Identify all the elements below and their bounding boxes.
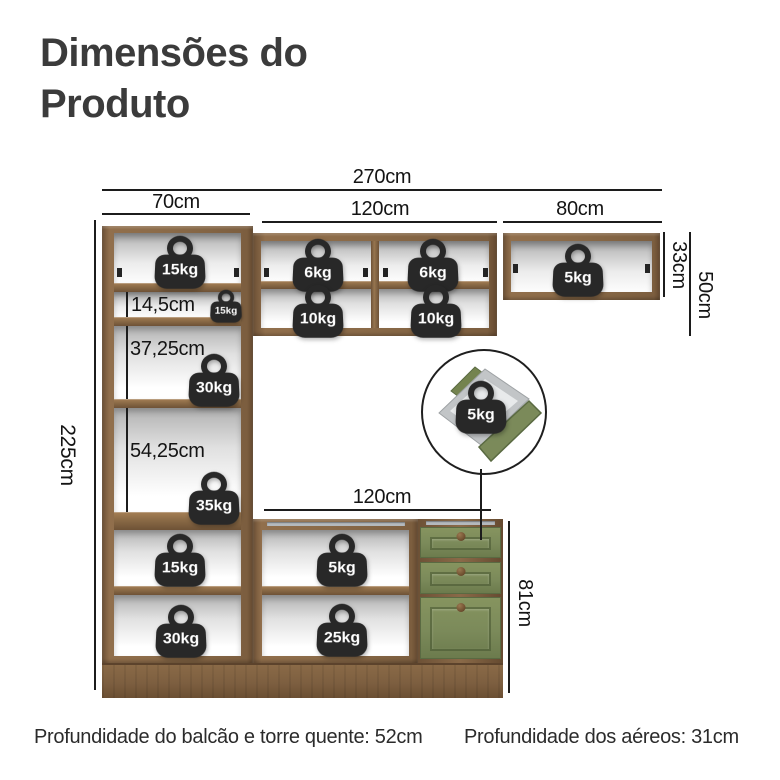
dim-line-upper-mid-width — [262, 221, 497, 223]
hinge-mark-icon — [117, 268, 122, 277]
weight-badge-upper-mid-top-right: 6kg — [407, 239, 459, 292]
dim-line-counter-height — [508, 521, 510, 693]
dim-line-upper-right-width — [503, 221, 662, 223]
weight-label: 5kg — [316, 553, 368, 587]
page-title: Dimensões do Produto — [40, 28, 390, 130]
dim-line-shelf-mid — [126, 326, 128, 399]
hinge-mark-icon — [363, 268, 368, 277]
weight-label: 10kg — [410, 304, 462, 338]
dim-line-upper-right-height — [663, 232, 665, 297]
hinge-mark-icon — [383, 268, 388, 277]
weight-badge-tower-shelf-large: 35kg — [188, 472, 240, 525]
weight-badge-upper-right: 5kg — [552, 244, 604, 297]
dim-label-upper-mid-width: 120cm — [351, 198, 410, 221]
weight-badge-tower-bottom: 30kg — [155, 605, 207, 658]
weight-label: 30kg — [188, 373, 240, 407]
weight-label: 5kg — [552, 263, 604, 297]
dim-label-counter-width: 120cm — [353, 486, 412, 509]
dim-line-tower-width — [102, 213, 250, 215]
dim-label-tower-height: 225cm — [55, 424, 79, 486]
hinge-mark-icon — [234, 268, 239, 277]
weight-label: 5kg — [455, 400, 507, 434]
weight-label: 15kg — [154, 553, 206, 587]
dim-label-shelf-large: 54,25cm — [130, 440, 205, 463]
drawer-unit-open-top — [426, 521, 495, 525]
weight-badge-upper-mid-top-left: 6kg — [292, 239, 344, 292]
dim-line-total-width — [102, 189, 662, 191]
hinge-mark-icon — [645, 264, 650, 273]
weight-badge-drawer: 5kg — [455, 381, 507, 434]
dim-label-upper-mid-height: 50cm — [693, 271, 716, 319]
weight-badge-tower-top: 15kg — [154, 236, 206, 289]
dim-label-shelf-small: 14,5cm — [131, 294, 195, 317]
tower-shelf — [114, 586, 241, 595]
dim-label-upper-right-width: 80cm — [556, 198, 604, 221]
hinge-mark-icon — [264, 268, 269, 277]
dim-label-total-width: 270cm — [353, 166, 412, 189]
footer-depth-upper: Profundidade dos aéreos: 31cm — [464, 726, 739, 749]
dim-label-counter-height: 81cm — [513, 579, 536, 627]
weight-badge-tower-lower: 15kg — [154, 534, 206, 587]
dim-line-tower-height — [94, 220, 96, 690]
dim-line-counter-width — [264, 509, 491, 511]
hinge-mark-icon — [513, 264, 518, 273]
green-drawer-unit — [418, 519, 503, 663]
drawer-knob-icon — [456, 532, 465, 541]
counter-shelf — [262, 586, 409, 595]
drawer-1 — [420, 527, 501, 558]
drawer-3 — [420, 597, 501, 659]
weight-label: 30kg — [155, 624, 207, 658]
dim-line-shelf-large — [126, 408, 128, 512]
footer-depth-counter: Profundidade do balcão e torre quente: 5… — [34, 726, 423, 749]
plinth-base — [102, 663, 503, 698]
weight-badge-tower-small-shelf: 15kg — [210, 290, 242, 323]
counter-open-top — [267, 522, 405, 526]
product-dimensions-diagram: Dimensões do Produto — [0, 0, 780, 780]
weight-badge-counter-lower: 25kg — [316, 604, 368, 657]
upper-middle-divider — [371, 241, 379, 328]
drawer-knob-icon — [456, 603, 465, 612]
weight-label: 15kg — [154, 255, 206, 289]
drawer-2 — [420, 562, 501, 594]
weight-badge-counter-upper: 5kg — [316, 534, 368, 587]
weight-label: 10kg — [292, 304, 344, 338]
callout-connector-line — [480, 469, 482, 540]
hinge-mark-icon — [483, 268, 488, 277]
dim-line-upper-mid-height — [689, 232, 691, 336]
dim-label-tower-width: 70cm — [152, 191, 200, 214]
dim-label-upper-right-height: 33cm — [667, 241, 690, 289]
weight-label: 25kg — [316, 623, 368, 657]
dim-label-shelf-mid: 37,25cm — [130, 338, 205, 361]
drawer-knob-icon — [456, 567, 465, 576]
weight-label: 15kg — [210, 301, 242, 322]
weight-label: 35kg — [188, 491, 240, 525]
weight-badge-tower-shelf-mid: 30kg — [188, 354, 240, 407]
weight-badge-upper-mid-bottom-left: 10kg — [292, 285, 344, 338]
weight-badge-upper-mid-bottom-right: 10kg — [410, 285, 462, 338]
dim-line-shelf-small — [126, 292, 128, 317]
